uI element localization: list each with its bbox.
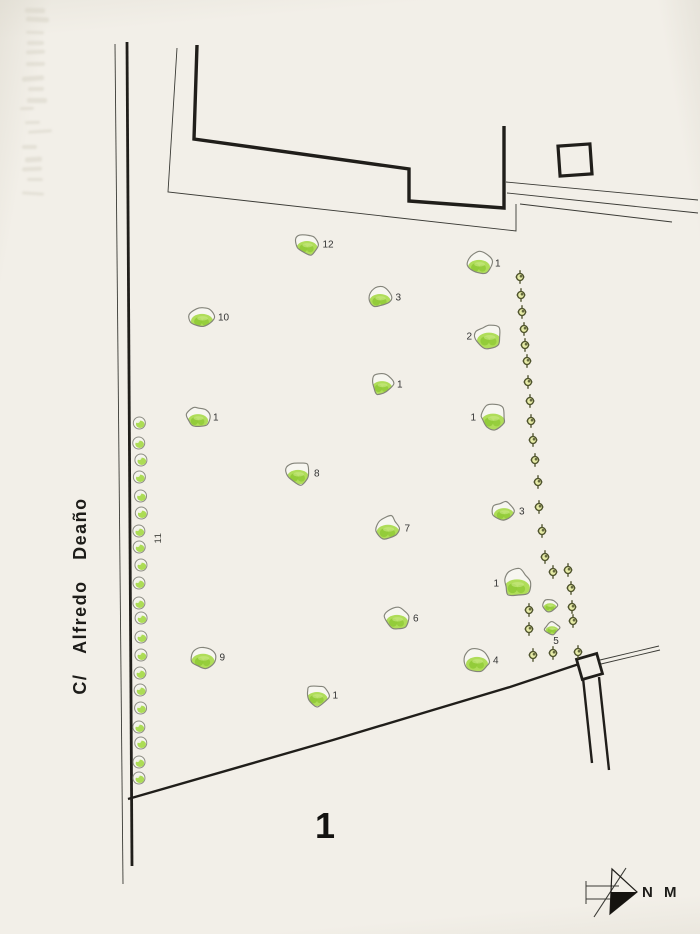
tree-markers-layer: 123101112187316941 [186, 235, 560, 707]
cross-marker [549, 646, 558, 660]
tree-marker: 1 [467, 251, 501, 274]
tree-number-label: 1 [493, 579, 499, 590]
cross-marker [525, 622, 534, 636]
cross-marker [521, 338, 530, 352]
tree-number-label: 1 [213, 413, 219, 424]
scanned-site-plan: 123101112187316941 N M C/ Alfredo Deaño … [0, 0, 700, 934]
tree-number-label: 8 [314, 469, 320, 480]
path-lines-top-right [506, 182, 698, 222]
cross-marker [523, 354, 532, 368]
shrub-marker [133, 437, 145, 449]
gate-post-square [577, 654, 603, 680]
cross-marker [568, 600, 577, 614]
north-label: N M [642, 884, 680, 901]
shrub-marker [134, 667, 146, 679]
tree-marker: 1 [470, 404, 505, 430]
tree-number-label: 10 [218, 313, 230, 324]
shrub-marker [133, 417, 145, 429]
shrub-marker [133, 471, 145, 483]
street-edge-lines [115, 42, 132, 884]
cross-marker [526, 394, 535, 408]
shrub-marker [135, 612, 147, 624]
tree-marker: 2 [466, 325, 501, 349]
building-outline [194, 45, 592, 208]
tree-marker: 7 [376, 515, 411, 539]
cross-marker [534, 475, 543, 489]
tree-number-label: 7 [405, 524, 411, 535]
shrub-marker [135, 559, 147, 571]
cross-marker [516, 270, 525, 284]
tree-foliage [287, 470, 309, 485]
tree-number-label: 12 [323, 240, 335, 251]
cross-marker [524, 375, 533, 389]
zone-number: 1 [315, 805, 335, 846]
plan-drawing: 123101112187316941 N M C/ Alfredo Deaño … [0, 0, 700, 934]
tree-marker: 12 [296, 235, 335, 255]
shrub-marker [133, 597, 145, 609]
tree-marker: 4 [464, 649, 499, 672]
tree-number-label: 1 [397, 380, 403, 391]
cross-marker [527, 414, 536, 428]
cluster-number: 5 [553, 636, 559, 647]
shrub-marker [133, 756, 145, 768]
tree-marker [543, 600, 558, 612]
tree-number-label: 4 [493, 656, 499, 667]
tree-marker: 3 [369, 286, 401, 308]
cross-marker [529, 433, 538, 447]
cross-marker [520, 322, 529, 336]
north-arrow: N M [586, 868, 680, 917]
tree-marker: 1 [306, 686, 338, 707]
shrub-marker [135, 507, 147, 519]
cross-marker [529, 648, 538, 662]
tree-foliage [481, 414, 505, 430]
shrub-marker [133, 721, 145, 733]
shrub-marker [135, 737, 147, 749]
bottom-boundary-line [128, 664, 579, 799]
tree-marker: 6 [384, 607, 419, 629]
cross-marker [569, 614, 578, 628]
tree-number-label: 1 [495, 259, 501, 270]
tree-marker: 10 [189, 308, 230, 329]
shrub-marker [135, 649, 147, 661]
shrub-marker [133, 541, 145, 553]
tree-foliage [377, 525, 400, 540]
cross-marker [525, 603, 534, 617]
street-name-label: C/ Alfredo Deaño [70, 497, 90, 694]
cross-marker [538, 524, 547, 538]
tree-marker: 1 [372, 374, 403, 395]
tree-number-label: 9 [220, 653, 226, 664]
shrub-marker [133, 772, 145, 784]
tree-foliage [546, 626, 559, 635]
cross-marker [564, 563, 573, 577]
cross-marker [531, 453, 540, 467]
cross-marker [518, 305, 527, 319]
shrub-row-layer [133, 417, 148, 784]
cross-marker [535, 500, 544, 514]
tree-number-label: 1 [333, 691, 339, 702]
cross-marker [549, 565, 558, 579]
tree-marker: 3 [492, 501, 525, 521]
tree-marker: 1 [493, 568, 530, 596]
tree-marker: 8 [286, 463, 320, 485]
tree-marker: 1 [186, 407, 219, 427]
cross-marker [541, 550, 550, 564]
shrub-marker [135, 490, 147, 502]
shrub-marker [135, 631, 147, 643]
cross-marker [517, 288, 526, 302]
tree-number-label: 1 [470, 413, 476, 424]
tree-number-label: 6 [413, 614, 419, 625]
tree-number-label: 3 [396, 293, 402, 304]
shrub-marker [133, 577, 145, 589]
tree-number-label: 2 [466, 332, 472, 343]
cross-marker [567, 581, 576, 595]
shrub-marker [135, 454, 147, 466]
tree-marker: 9 [191, 647, 225, 669]
tree-foliage [306, 692, 327, 706]
shrub-marker [135, 702, 147, 714]
gate-structure [577, 646, 660, 770]
tree-marker [544, 622, 560, 635]
shrub-marker [134, 684, 146, 696]
shrub-marker [133, 525, 145, 537]
building-annex-square [558, 144, 592, 176]
shrub-row-number: 11 [153, 533, 164, 544]
tree-number-label: 3 [519, 507, 525, 518]
